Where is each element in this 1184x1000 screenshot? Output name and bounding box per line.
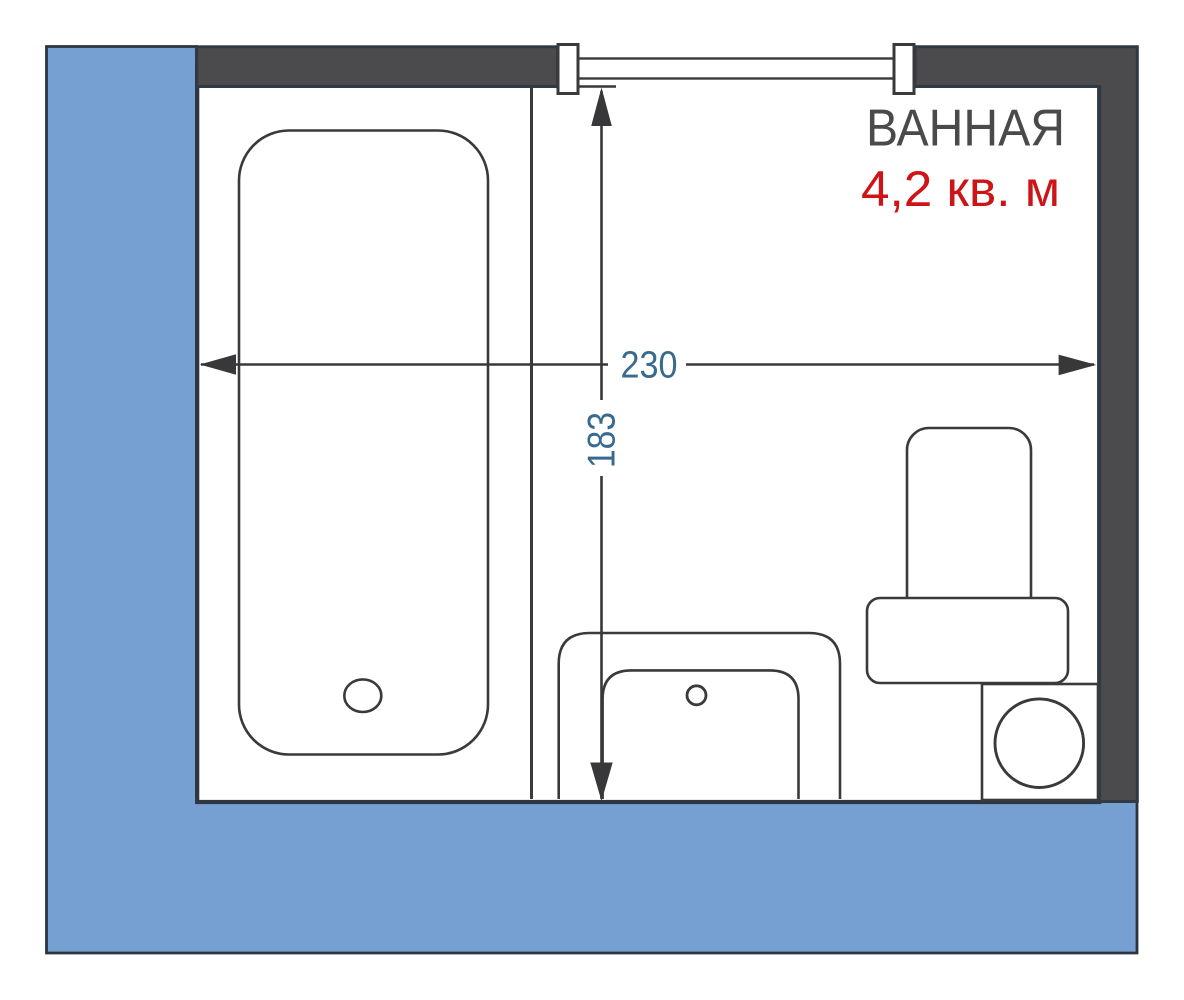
svg-text:183: 183 [581,412,624,468]
svg-text:230: 230 [621,345,678,387]
svg-text:ВАННАЯ: ВАННАЯ [866,100,1065,158]
svg-text:4,2 кв. м: 4,2 кв. м [861,161,1060,217]
